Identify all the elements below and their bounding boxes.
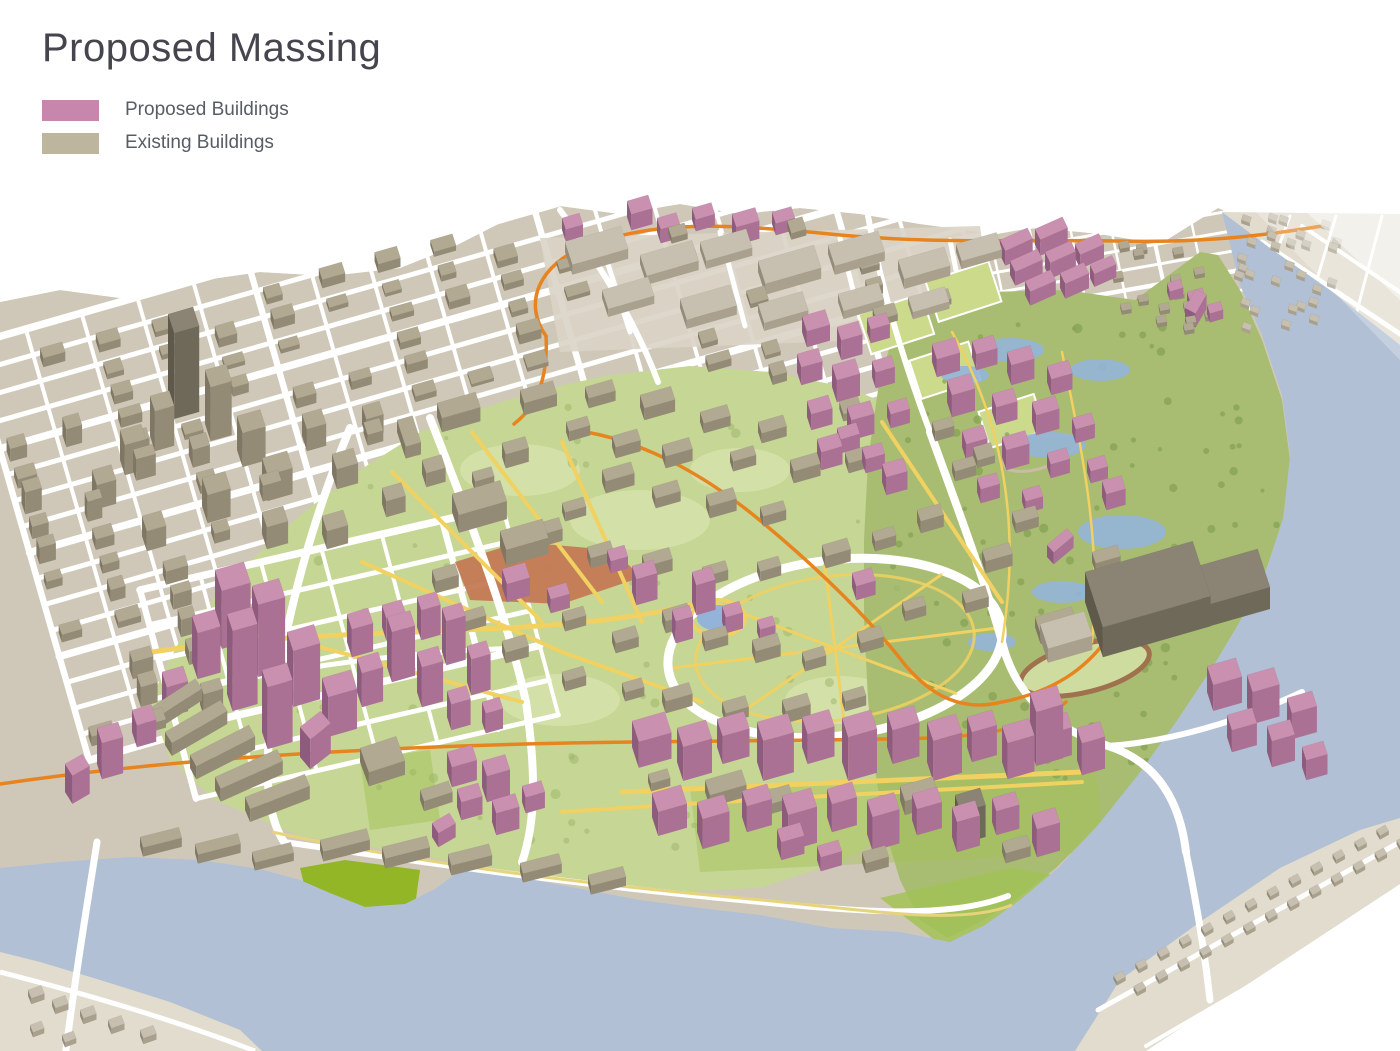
header: Proposed Massing Proposed BuildingsExist…: [42, 26, 381, 165]
legend-item: Existing Buildings: [42, 132, 381, 154]
legend-label: Existing Buildings: [99, 132, 274, 154]
legend-item: Proposed Buildings: [42, 99, 381, 121]
legend-swatch-proposed: [42, 100, 99, 121]
legend-label: Proposed Buildings: [99, 99, 289, 121]
page-title: Proposed Massing: [42, 26, 381, 71]
legend-swatch-existing: [42, 133, 99, 154]
legend: Proposed BuildingsExisting Buildings: [42, 99, 381, 154]
